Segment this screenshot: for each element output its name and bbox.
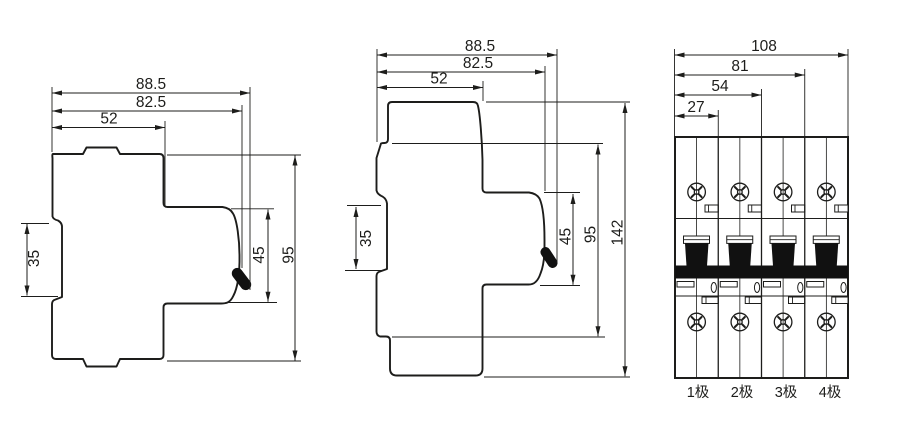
dim-text-body-height: 95: [583, 226, 600, 243]
dim-text-width-1pole: 27: [687, 99, 704, 116]
dim-text-din-slot: 35: [358, 230, 375, 247]
dim-din-slot: 35: [356, 207, 375, 269]
dim-text-overall-width: 88.5: [465, 38, 495, 55]
dim-width-1pole: 27: [675, 99, 719, 116]
front-view-poles: 108 81 54 27 1极 2极 3极: [675, 38, 849, 401]
dim-text-din-slot: 35: [26, 250, 43, 267]
breaker-dimension-figure: 88.5 82.5 52 35 45 95: [0, 0, 900, 440]
breaker-side-outline-tall: [377, 102, 545, 376]
dim-text-width-4pole: 108: [751, 38, 777, 55]
drawing-canvas: 88.5 82.5 52 35 45 95: [0, 0, 900, 440]
dim-width-4pole: 108: [675, 38, 849, 55]
dim-front-height: 45: [558, 194, 575, 285]
dim-text-front-height: 45: [251, 246, 268, 263]
pole-label-4: 4极: [819, 384, 842, 401]
extension-lines: [377, 49, 557, 263]
dim-din-slot: 35: [26, 224, 43, 296]
dim-overall-width: 88.5: [52, 76, 250, 93]
extension-lines: [675, 49, 849, 136]
dim-overall-width: 88.5: [377, 38, 557, 55]
dim-upper-width: 52: [52, 111, 165, 128]
toggle-lever: [539, 245, 560, 270]
dim-text-width-2pole: 54: [711, 78, 729, 95]
pole-label-2: 2极: [731, 384, 754, 401]
extension-lines: [52, 87, 250, 290]
dim-text-body-width: 82.5: [136, 94, 166, 111]
dim-text-body-width: 82.5: [463, 55, 493, 72]
dim-overall-height: 142: [610, 103, 627, 376]
pole-label-1: 1极: [687, 384, 710, 401]
side-view-142mm: 88.5 82.5 52 35 45 95 142: [345, 38, 630, 377]
dim-body-width: 82.5: [52, 94, 242, 111]
dim-body-height: 95: [583, 145, 600, 337]
dim-text-width-3pole: 81: [731, 58, 748, 75]
dim-overall-height: 95: [281, 156, 298, 361]
dim-text-front-height: 45: [558, 228, 575, 245]
dim-text-overall-height: 95: [281, 246, 298, 263]
breaker-side-outline: [52, 148, 240, 367]
pole-label-3: 3极: [775, 384, 798, 401]
dim-width-2pole: 54: [675, 78, 762, 95]
dim-text-upper-width: 52: [100, 111, 117, 128]
dim-front-height: 45: [251, 210, 268, 302]
dim-text-overall-width: 88.5: [136, 76, 166, 93]
dim-text-upper-width: 52: [430, 71, 447, 88]
pole-labels: 1极 2极 3极 4极: [687, 384, 842, 401]
dim-body-width: 82.5: [377, 55, 545, 72]
dim-text-overall-height: 142: [610, 220, 627, 246]
side-view-95mm: 88.5 82.5 52 35 45 95: [21, 76, 301, 367]
handle-tie-bar: [675, 266, 848, 279]
dim-width-3pole: 81: [675, 58, 805, 75]
dim-upper-width: 52: [377, 71, 483, 88]
